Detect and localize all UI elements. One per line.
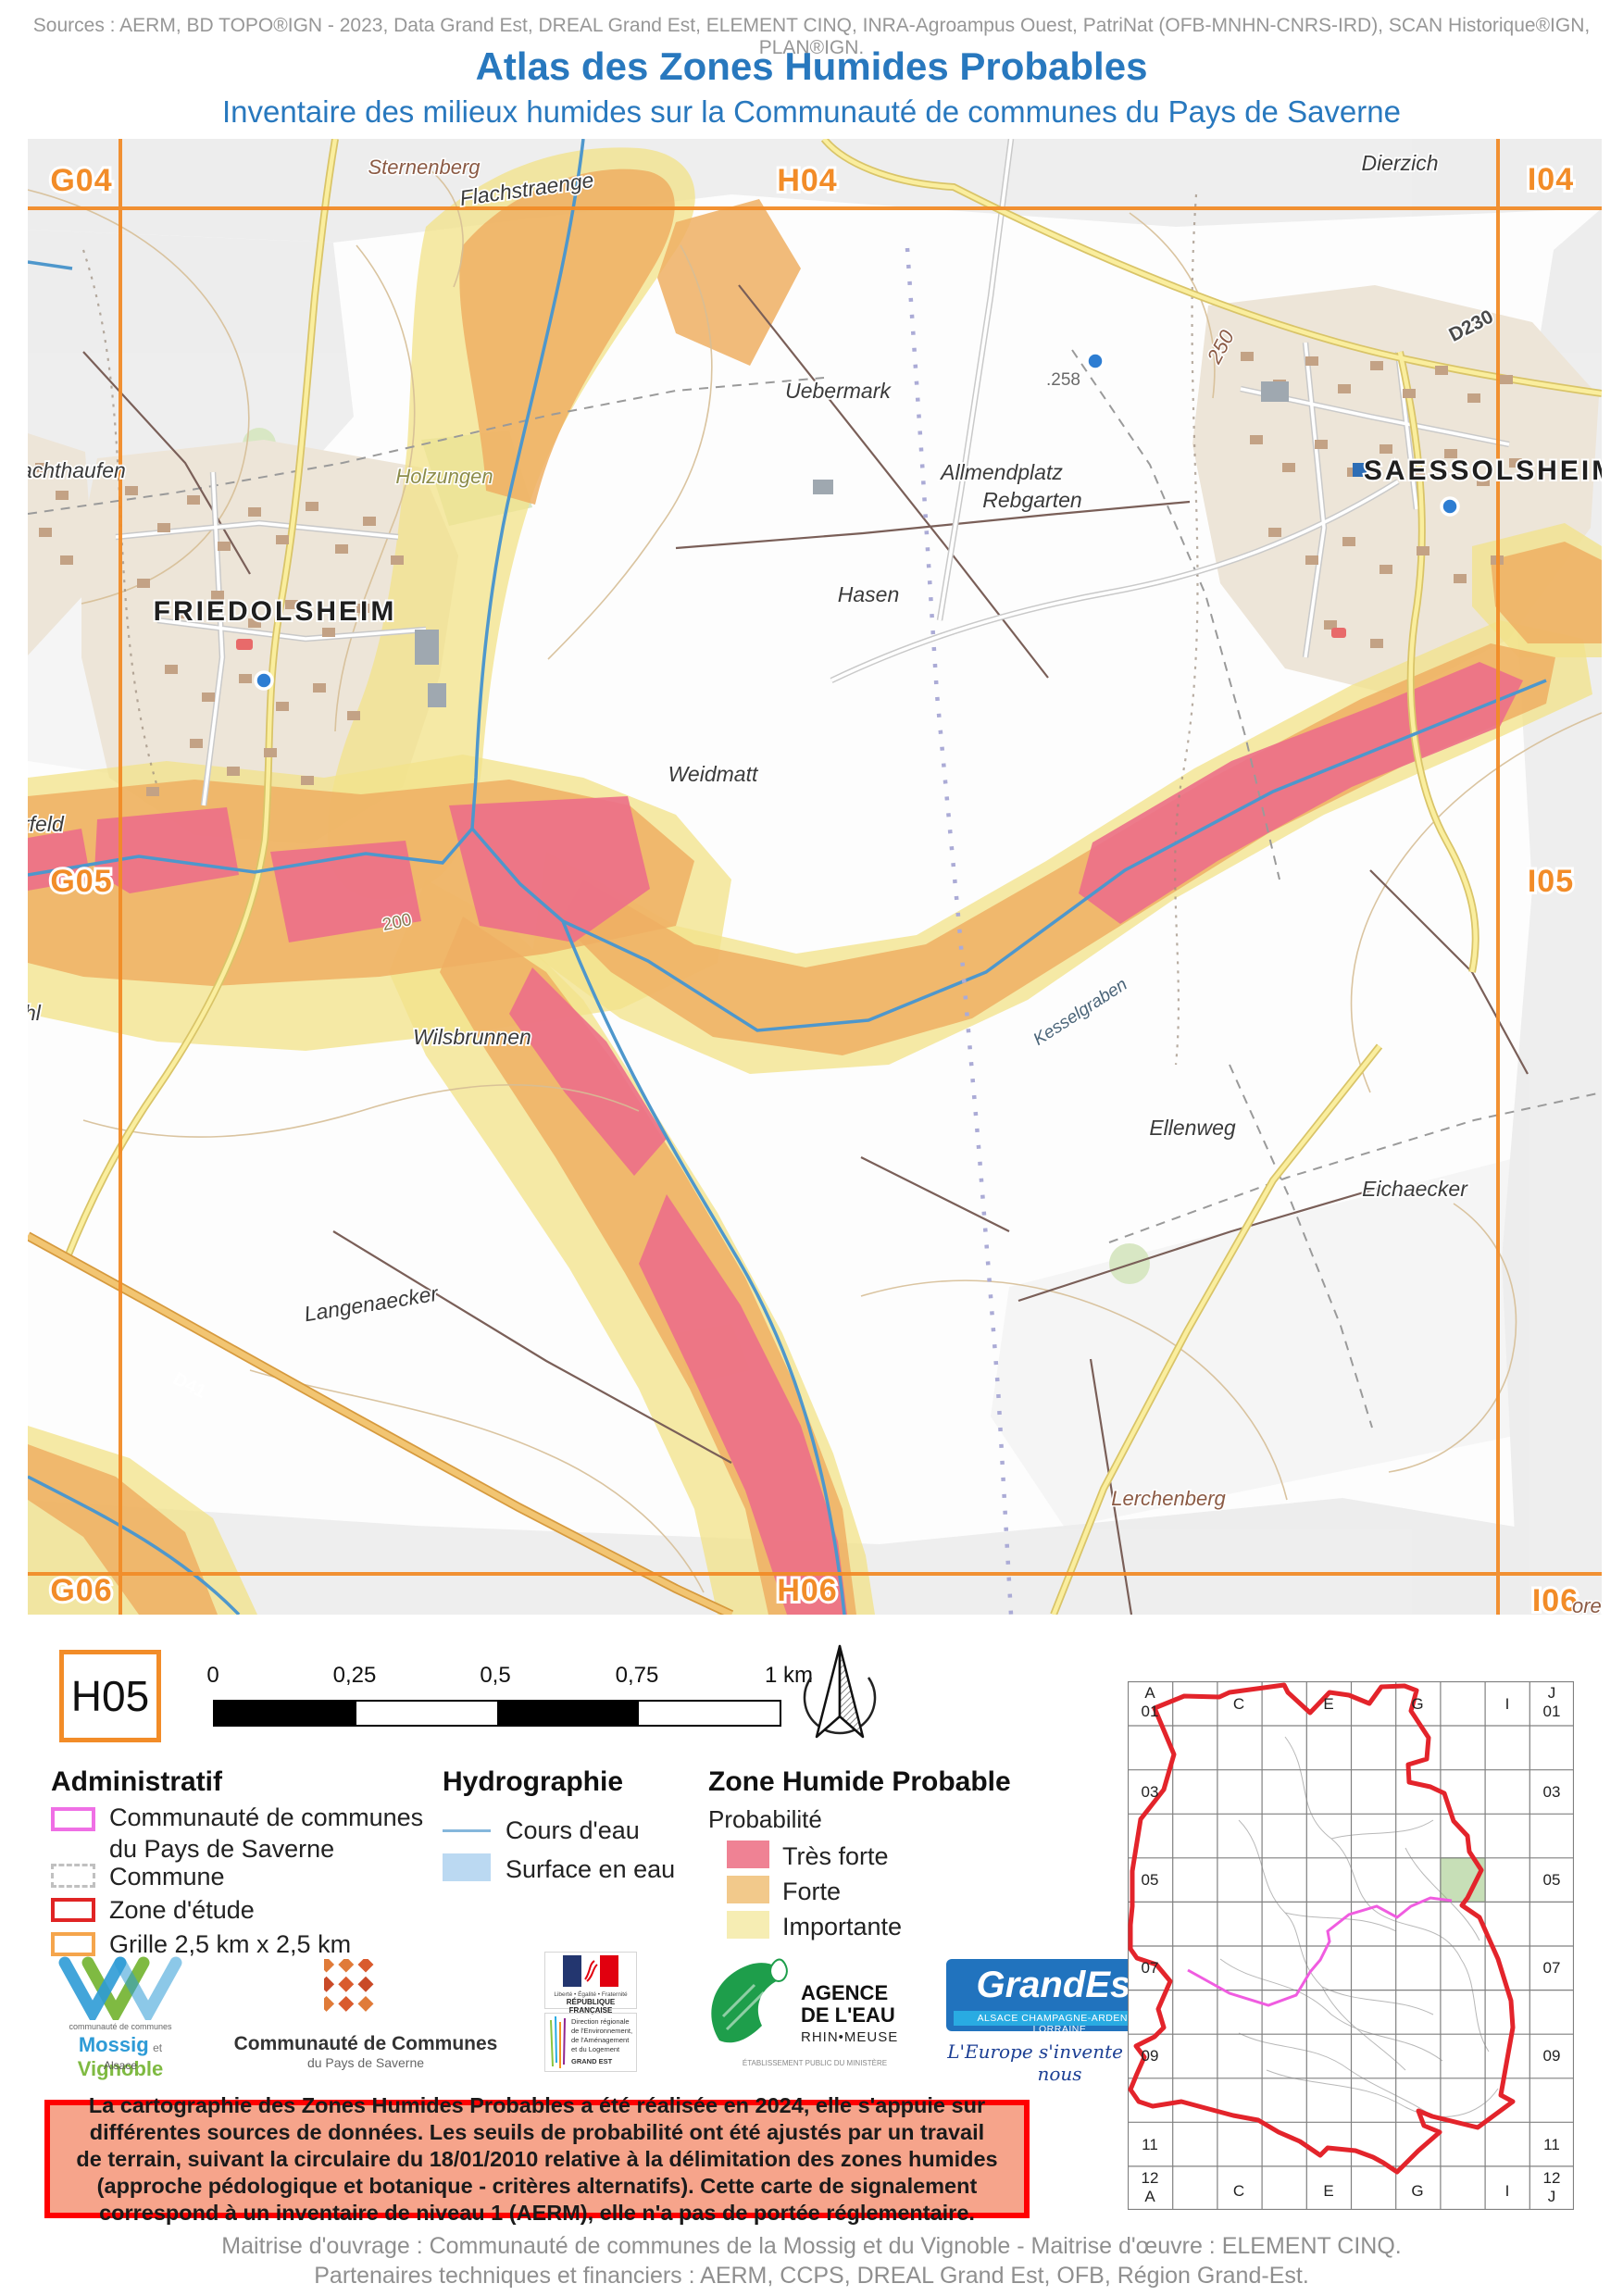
legend-swatch-commune: [51, 1864, 95, 1888]
dreal-line4: et du Logement: [571, 2045, 634, 2054]
place-label-wilsbrunnen: Wilsbrunnen: [413, 1025, 531, 1049]
tile-id-box: H05: [59, 1650, 161, 1742]
grid-label-h06: H06: [777, 1573, 837, 1608]
legend-administratif-title: Administratif: [51, 1766, 222, 1798]
legend-label-importante: Importante: [782, 1913, 902, 1941]
atlas-page: Sources : AERM, BD TOPO®IGN - 2023, Data…: [0, 0, 1623, 2296]
elevation-label-258: .258: [1046, 370, 1080, 390]
ov-br-12: 12: [1543, 2169, 1561, 2187]
ov-top-e: E: [1323, 1695, 1333, 1713]
ov-br-j: J: [1548, 2188, 1556, 2205]
ov-bot-c: C: [1233, 2182, 1244, 2200]
town-label-friedolsheim: FRIEDOLSHEIM: [154, 596, 397, 627]
legend-swatch-surface-eau: [443, 1853, 491, 1881]
aerm-icon: [699, 1955, 796, 2048]
place-label-lerchenberg: Lerchenberg: [1111, 1487, 1226, 1510]
ov-bot-i: I: [1505, 2182, 1510, 2200]
scale-tick-0: 0: [206, 1663, 218, 1689]
place-label-dierzich: Dierzich: [1361, 151, 1438, 175]
place-label-allmendplatz: Allmendplatz: [939, 460, 1063, 484]
logo-ccps: Communauté de Communes du Pays de Savern…: [222, 1959, 509, 2070]
place-label-hasen: Hasen: [838, 582, 899, 606]
ov-r-11: 11: [1543, 2136, 1560, 2153]
dreal-line1: Direction régionale: [571, 2017, 634, 2027]
legend-swatch-tres-forte: [727, 1841, 769, 1868]
ccps-subname: du Pays de Saverne: [222, 2055, 509, 2070]
place-label-rebgarten: Rebgarten: [982, 488, 1081, 512]
legend-label-forte: Forte: [782, 1878, 841, 1906]
grid-label-g04: G04: [50, 163, 112, 198]
scale-tick-05: 0,5: [480, 1663, 510, 1689]
grid-label-g06: G06: [50, 1573, 112, 1608]
town-label-saessolsheim: SAESSOLSHEIM: [1364, 455, 1602, 486]
topographic-map: G04 H04 I04 G05 I05 G06 H06 I06 FRIEDOLS…: [28, 139, 1602, 1615]
legend-label-commune: Commune: [109, 1863, 225, 1891]
ov-top-i: I: [1505, 1695, 1510, 1713]
ov-l-11: 11: [1142, 2136, 1158, 2153]
ov-r-03: 03: [1543, 1783, 1561, 1801]
ov-bot-e: E: [1323, 2182, 1333, 2200]
place-label-weidmatt: Weidmatt: [668, 762, 759, 786]
page-title: Atlas des Zones Humides Probables: [0, 44, 1623, 89]
ov-tr-j: J: [1548, 1684, 1556, 1702]
ov-top-c: C: [1233, 1695, 1244, 1713]
footer-line1: Maitrise d'ouvrage : Communauté de commu…: [0, 2233, 1623, 2260]
place-label-eichaecker: Eichaecker: [1362, 1177, 1468, 1201]
ov-r-07: 07: [1543, 1959, 1561, 1977]
ov-tl-a: A: [1144, 1684, 1155, 1702]
legend-swatch-importante: [727, 1911, 769, 1939]
page-subtitle: Inventaire des milieux humides sur la Co…: [0, 94, 1623, 130]
footer-line2: Partenaires techniques et financiers : A…: [0, 2263, 1623, 2290]
ov-top-g: G: [1411, 1695, 1423, 1713]
legend-label-cc-line2: du Pays de Saverne: [109, 1835, 334, 1864]
place-label-oren-partial: oren: [1572, 1594, 1602, 1615]
mossig-vignoble-icon: [37, 1955, 204, 2020]
dreal-line2: de l'Environnement,: [571, 2027, 634, 2036]
ov-bl-12: 12: [1142, 2169, 1159, 2187]
aerm-line4: ÉTABLISSEMENT PUBLIC DU MINISTÈRE: [699, 2059, 930, 2067]
ov-r-05: 05: [1543, 1871, 1561, 1889]
mossig-word: Mossig: [79, 2033, 149, 2056]
place-label-ellenweg: Ellenweg: [1149, 1116, 1236, 1140]
legend-swatch-forte: [727, 1876, 769, 1903]
grid-label-i04: I04: [1528, 162, 1574, 197]
tile-id: H05: [71, 1671, 149, 1721]
dreal-line3: de l'Aménagement: [571, 2036, 634, 2045]
ov-r-09: 09: [1543, 2047, 1561, 2065]
ov-l-09: 09: [1142, 2047, 1159, 2065]
place-label-wachthaufen-partial: achthaufen: [28, 458, 126, 482]
legend-zhp-subtitle: Probabilité: [708, 1805, 822, 1834]
legend-swatch-cc-pays-saverne: [51, 1807, 95, 1831]
place-label-feld-partial: rfeld: [28, 812, 65, 836]
legend-hydrographie-title: Hydrographie: [443, 1766, 623, 1798]
north-arrow: [789, 1641, 891, 1756]
legend-label-cours-eau: Cours d'eau: [506, 1816, 640, 1845]
legend-swatch-zone-etude: [51, 1898, 95, 1922]
place-label-hl-partial: hl: [28, 1001, 42, 1025]
mossig-small-text: communauté de communes: [37, 2022, 204, 2031]
logo-republique-dreal: Liberté • Égalité • Fraternité RÉPUBLIQU…: [526, 1952, 655, 2074]
scale-bar-track: [213, 1700, 781, 1727]
grid-label-g05: G05: [50, 864, 112, 899]
legend-swatch-cours-eau: [443, 1829, 491, 1832]
scale-tick-075: 0,75: [616, 1663, 659, 1689]
ov-tl-01: 01: [1142, 1703, 1159, 1720]
ov-l-03: 03: [1142, 1783, 1159, 1801]
legend-label-surface-eau: Surface en eau: [506, 1855, 675, 1884]
dreal-sticks-icon: [548, 2016, 568, 2070]
logo-aerm: AGENCE DE L'EAU RHIN•MEUSE ÉTABLISSEMENT…: [699, 1955, 930, 2074]
legend-label-zone-etude: Zone d'étude: [109, 1896, 255, 1925]
overview-map: A 01 C E G I J 01 03 05 07 09 11 03 05 0…: [1128, 1681, 1574, 2215]
french-flag-icon: [563, 1955, 618, 1987]
disclaimer-box: La cartographie des Zones Humides Probab…: [44, 2100, 1030, 2218]
place-label-uebermark: Uebermark: [785, 379, 892, 403]
aerm-line1: AGENCE: [801, 1981, 888, 2005]
legend-swatch-grille: [51, 1932, 95, 1956]
aerm-line3: RHIN•MEUSE: [801, 2029, 898, 2045]
legend-zhp-title: Zone Humide Probable: [708, 1766, 1011, 1798]
aerm-line2: DE L'EAU: [801, 2003, 895, 2028]
disclaimer-text: La cartographie des Zones Humides Probab…: [50, 2087, 1024, 2232]
rf-motto: Liberté • Égalité • Fraternité: [545, 1991, 636, 1998]
place-label-sternenberg: Sternenberg: [368, 156, 481, 179]
ov-bl-a: A: [1144, 2188, 1155, 2205]
ov-tr-01: 01: [1543, 1703, 1561, 1720]
ov-l-05: 05: [1142, 1871, 1159, 1889]
mossig-alsace: Alsace: [37, 2059, 204, 2072]
grid-label-i05: I05: [1528, 864, 1574, 899]
legend-label-cc-line1: Communauté de communes: [109, 1803, 423, 1832]
mossig-et: et: [153, 2041, 162, 2054]
logo-mossig-vignoble: communauté de communes Mossig et Vignobl…: [37, 1955, 204, 2076]
dreal-region: GRAND EST: [571, 2057, 634, 2066]
scale-tick-025: 0,25: [333, 1663, 377, 1689]
ov-bot-g: G: [1411, 2182, 1423, 2200]
ov-l-07: 07: [1142, 1959, 1159, 1977]
ccps-diamonds-icon: [324, 1959, 407, 2026]
legend-label-tres-forte: Très forte: [782, 1842, 889, 1871]
ccps-name: Communauté de Communes: [222, 2033, 509, 2055]
place-label-holzungen: Holzungen: [395, 465, 493, 488]
main-map: G04 H04 I04 G05 I05 G06 H06 I06 FRIEDOLS…: [28, 139, 1602, 1615]
grid-label-h04: H04: [777, 163, 837, 198]
